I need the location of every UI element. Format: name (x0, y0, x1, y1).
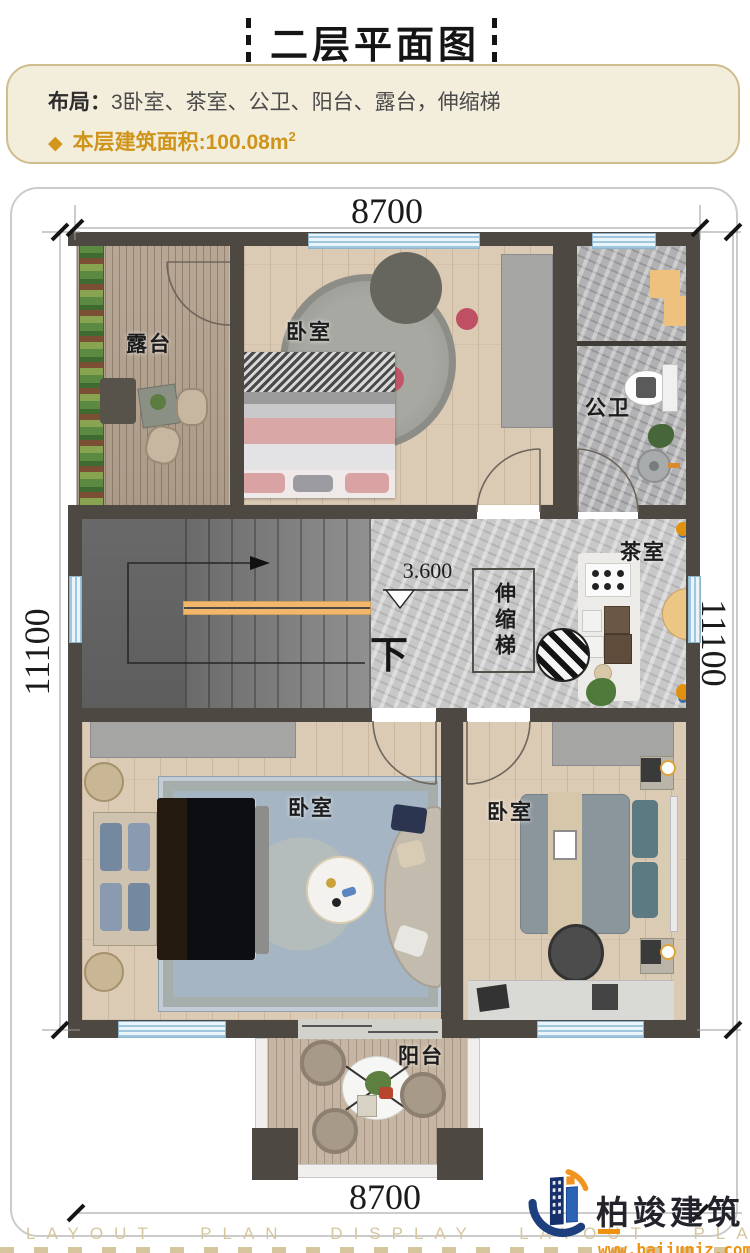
site-dash-icon (598, 1229, 620, 1234)
dimension-ticks (52, 220, 741, 1221)
level-symbol (383, 590, 468, 608)
bathroom-label: 公卫 (585, 392, 631, 422)
door-swings (167, 262, 638, 784)
floor-plan-page: 二层平面图 布局：3卧室、茶室、公卫、阳台、露台，伸缩梯 ◆本层建筑面积:100… (0, 0, 750, 1253)
tea-room-label: 茶室 (620, 536, 666, 566)
balcony-label: 阳台 (398, 1040, 444, 1070)
stair-walk-line (128, 556, 365, 663)
bedroom-right-label: 卧室 (487, 796, 533, 826)
terrace-label: 露台 (126, 328, 172, 358)
brand-site-row: www.baijunjz.com (598, 1221, 750, 1253)
plan-annotation-overlay (0, 0, 750, 1253)
brand-site-url: www.baijunjz.com (598, 1240, 750, 1253)
brand-logo-icon (528, 1166, 592, 1240)
bedroom-top-label: 卧室 (286, 316, 332, 346)
bedroom-left-label: 卧室 (288, 792, 334, 822)
